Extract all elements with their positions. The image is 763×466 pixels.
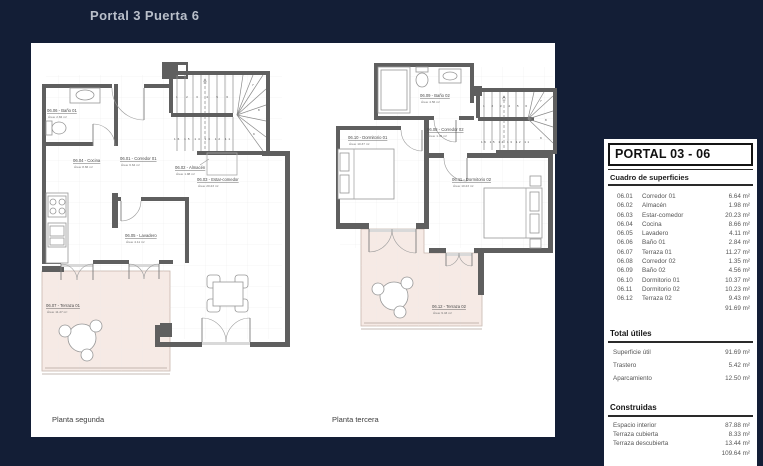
label-estar-comedor: 06.03 - Estar-comedor [197,177,239,182]
label-bano-02: 06.09 - Baño 02 [420,93,450,98]
total-utiles-rows: Superficie útil91.69 m² Trastero5.42 m² … [604,343,757,388]
surfaces-panel: PORTAL 03 - 06 Cuadro de superficies 06.… [604,139,757,466]
area-lavadero: Área: 4.11 m² [126,240,145,244]
table-row: Trastero5.42 m² [613,362,750,375]
label-dormitorio-01: 06.10 - Dormitorio 01 [348,135,388,140]
label-almacen: 06.02 - Almacén [175,165,206,170]
area-estar-comedor: Área: 20.23 m² [198,184,218,188]
table-total: 91.69 m² [604,305,757,314]
area-dormitorio-02: Área: 10.23 m² [453,184,473,188]
table-row: 109.64 m² [613,450,750,459]
page: Portal 3 Puerta 6 [0,0,763,464]
kitchen-fixtures [46,193,68,263]
area-dormitorio-01: Área: 10.37 m² [349,142,369,146]
page-title: Portal 3 Puerta 6 [90,8,199,23]
label-corredor-02: 06.08 - Corredor 02 [427,127,464,132]
area-bano-01: Área: 2.84 m² [48,115,67,119]
table-row: 06.10Dormitorio 0110.37 m² [617,277,750,286]
area-almacen: Área: 1.98 m² [176,172,195,176]
table-row: 06.04Cocina8.66 m² [617,221,750,230]
label-lavadero: 06.05 - Lavadero [125,233,157,238]
caption-planta-tercera: Planta tercera [332,415,379,424]
table-row: 06.06Baño 012.84 m² [617,239,750,248]
table-row: Superficie útil91.69 m² [613,349,750,362]
panel-subtitle: Cuadro de superficies [608,169,753,186]
table-row: 06.02Almacén1.98 m² [617,202,750,211]
label-cocina: 06.04 - Cocina [73,158,101,163]
area-terraza-01: Área: 11.27 m² [47,310,67,314]
caption-planta-segunda: Planta segunda [52,415,104,424]
panel-title: PORTAL 03 - 06 [608,143,753,166]
area-bano-02: Área: 4.56 m² [421,100,440,104]
label-terraza-01: 06.07 - Terraza 01 [46,303,81,308]
terrace-01-floor [42,271,170,374]
floorplan-planta-tercera: 1 2 3 4 5 6 16 15 14 13 12 11 7 8 9 [334,55,557,407]
table-row: 06.08Corredor 021.35 m² [617,258,750,267]
table-row: Terraza descubierta13.44 m² [613,440,750,449]
table-row: 06.05Lavadero4.11 m² [617,230,750,239]
section-construidas: Construidas [608,401,753,417]
table-row: 06.12Terraza 029.43 m² [617,295,750,304]
table-row: Terraza cubierta8.33 m² [613,431,750,440]
bed-dormitorio-01 [338,149,394,199]
area-corredor-02: Área: 1.35 m² [428,134,447,138]
floorplan-planta-segunda: 1 2 3 4 5 6 16 15 14 13 12 11 7 8 9 [37,55,299,407]
table-row: Espacio interior87.88 m² [613,422,750,431]
table-row: 06.01Corredor 016.64 m² [617,193,750,202]
table-row: 06.09Baño 024.56 m² [617,267,750,276]
plan-sheet: 1 2 3 4 5 6 16 15 14 13 12 11 7 8 9 [31,43,555,437]
label-corredor-01: 06.01 - Corredor 01 [120,156,157,161]
construidas-rows: Espacio interior87.88 m² Terraza cubiert… [604,417,757,459]
area-cocina: Área: 8.66 m² [74,165,93,169]
label-dormitorio-02: 06.11 - Dormitorio 02 [452,177,492,182]
table-row: 06.11Dormitorio 0210.23 m² [617,286,750,295]
area-corredor-01: Área: 6.64 m² [121,163,140,167]
table-row: 06.03Estar-comedor20.23 m² [617,212,750,221]
surfaces-table: 06.01Corredor 016.64 m² 06.02Almacén1.98… [604,186,757,305]
label-terraza-02: 06.12 - Terraza 02 [432,304,467,309]
table-row: Aparcamiento12.50 m² [613,375,750,388]
table-row: 06.07Terraza 0111.27 m² [617,249,750,258]
label-bano-01: 06.06 - Baño 01 [47,108,77,113]
section-total-utiles: Total útiles [608,327,753,343]
area-terraza-02: Área: 9.43 m² [433,311,452,315]
